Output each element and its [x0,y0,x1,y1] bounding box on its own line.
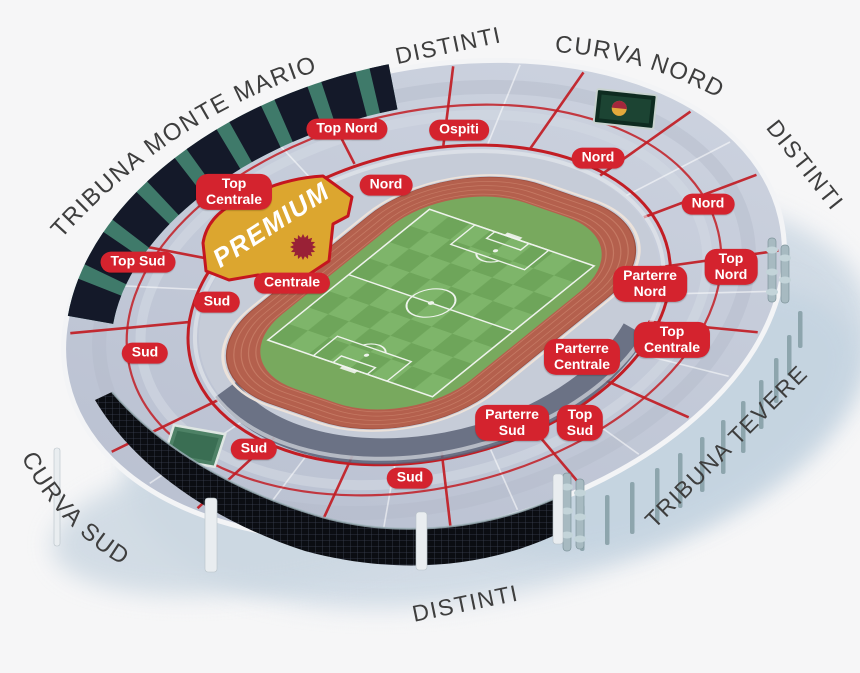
section-badge-parterre-nord[interactable]: Parterre Nord [613,266,687,302]
stadium-illustration: PREMIUM [0,0,860,673]
section-badge-parterre-sud[interactable]: Parterre Sud [475,405,549,441]
section-badge-top-centrale-east[interactable]: Top Centrale [634,322,710,358]
section-badge-top-sud-west[interactable]: Top Sud [101,252,176,273]
section-badge-top-sud-east[interactable]: Top Sud [557,405,603,441]
section-badge-top-centrale-west[interactable]: Top Centrale [196,174,272,210]
north-scoreboard [594,89,657,129]
premium-star-icon [290,234,316,260]
section-badge-nord-west[interactable]: Nord [360,175,413,196]
section-badge-top-nord-east[interactable]: Top Nord [705,249,758,285]
section-badge-sud-west-upper[interactable]: Sud [194,292,240,313]
stadium-map: PREMIUM [0,0,860,673]
section-badge-ospiti[interactable]: Ospiti [429,120,489,141]
section-badge-nord-top[interactable]: Nord [572,148,625,169]
section-badge-sud-west-lower[interactable]: Sud [122,343,168,364]
section-badge-parterre-centrale[interactable]: Parterre Centrale [544,339,620,375]
section-badge-sud-south-west[interactable]: Sud [231,439,277,460]
section-badge-centrale[interactable]: Centrale [254,273,330,294]
section-badge-sud-south[interactable]: Sud [387,468,433,489]
section-badge-nord-east[interactable]: Nord [682,194,735,215]
section-badge-top-nord-west[interactable]: Top Nord [306,119,387,140]
